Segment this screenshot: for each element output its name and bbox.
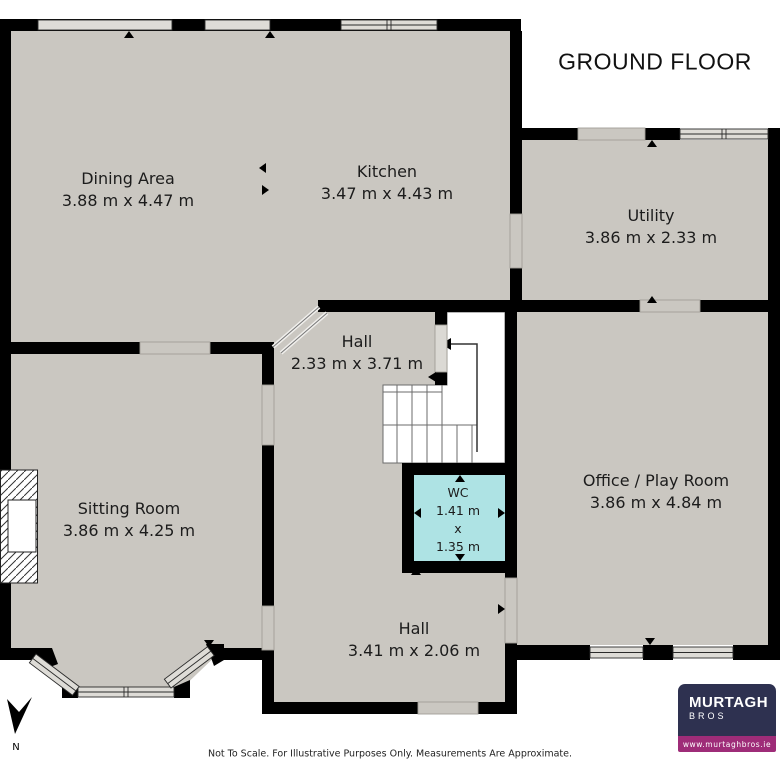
office-window-left — [590, 647, 643, 658]
room-name: Sitting Room — [63, 498, 195, 520]
kitchen-window — [341, 20, 437, 30]
room-name: Hall — [348, 618, 480, 640]
room-dims: 2.33 m x 3.71 m — [291, 353, 423, 375]
room-dim-depth: 1.35 m — [436, 538, 480, 556]
room-dim-sep: x — [436, 520, 480, 538]
room-name: Hall — [291, 331, 423, 353]
agency-logo-mark: MURTAGH BROS — [678, 684, 776, 736]
agency-website: www.murtaghbros.ie — [678, 736, 776, 752]
room-dims: 3.86 m x 4.25 m — [63, 520, 195, 542]
room-label-office: Office / Play Room 3.86 m x 4.84 m — [583, 470, 729, 514]
room-name: Kitchen — [321, 161, 453, 183]
room-name: Office / Play Room — [583, 470, 729, 492]
room-label-sitting: Sitting Room 3.86 m x 4.25 m — [63, 498, 195, 542]
room-dims: 3.88 m x 4.47 m — [62, 190, 194, 212]
agency-logo: MURTAGH BROS www.murtaghbros.ie — [678, 684, 776, 752]
fireplace — [0, 470, 38, 583]
room-dims: 3.86 m x 2.33 m — [585, 227, 717, 249]
north-label: N — [12, 742, 19, 753]
room-label-kitchen: Kitchen 3.47 m x 4.43 m — [321, 161, 453, 205]
room-name: WC — [436, 484, 480, 502]
room-label-wc: WC 1.41 m x 1.35 m — [436, 484, 480, 556]
office-window-right — [673, 647, 733, 658]
room-name: Dining Area — [62, 168, 194, 190]
room-label-utility: Utility 3.86 m x 2.33 m — [585, 205, 717, 249]
north-arrow-icon: N — [7, 697, 32, 753]
utility-window — [680, 129, 768, 139]
agency-name: MURTAGH — [689, 695, 776, 710]
room-label-hall-upper: Hall 2.33 m x 3.71 m — [291, 331, 423, 375]
room-dims: 3.86 m x 4.84 m — [583, 492, 729, 514]
room-label-hall-lower: Hall 3.41 m x 2.06 m — [348, 618, 480, 662]
room-label-dining: Dining Area 3.88 m x 4.47 m — [62, 168, 194, 212]
disclaimer-text: Not To Scale. For Illustrative Purposes … — [208, 749, 572, 760]
room-name: Utility — [585, 205, 717, 227]
room-dims: 3.41 m x 2.06 m — [348, 640, 480, 662]
floor-plan-drawing: N — [0, 0, 780, 780]
bay-window-bottom — [78, 687, 174, 697]
floor-plan-page: N GROUND FLOOR Dining Area 3.88 m x 4.47… — [0, 0, 780, 780]
page-title: GROUND FLOOR — [558, 49, 752, 76]
room-dims: 3.47 m x 4.43 m — [321, 183, 453, 205]
agency-name-sub: BROS — [689, 710, 776, 722]
room-dim-width: 1.41 m — [436, 502, 480, 520]
